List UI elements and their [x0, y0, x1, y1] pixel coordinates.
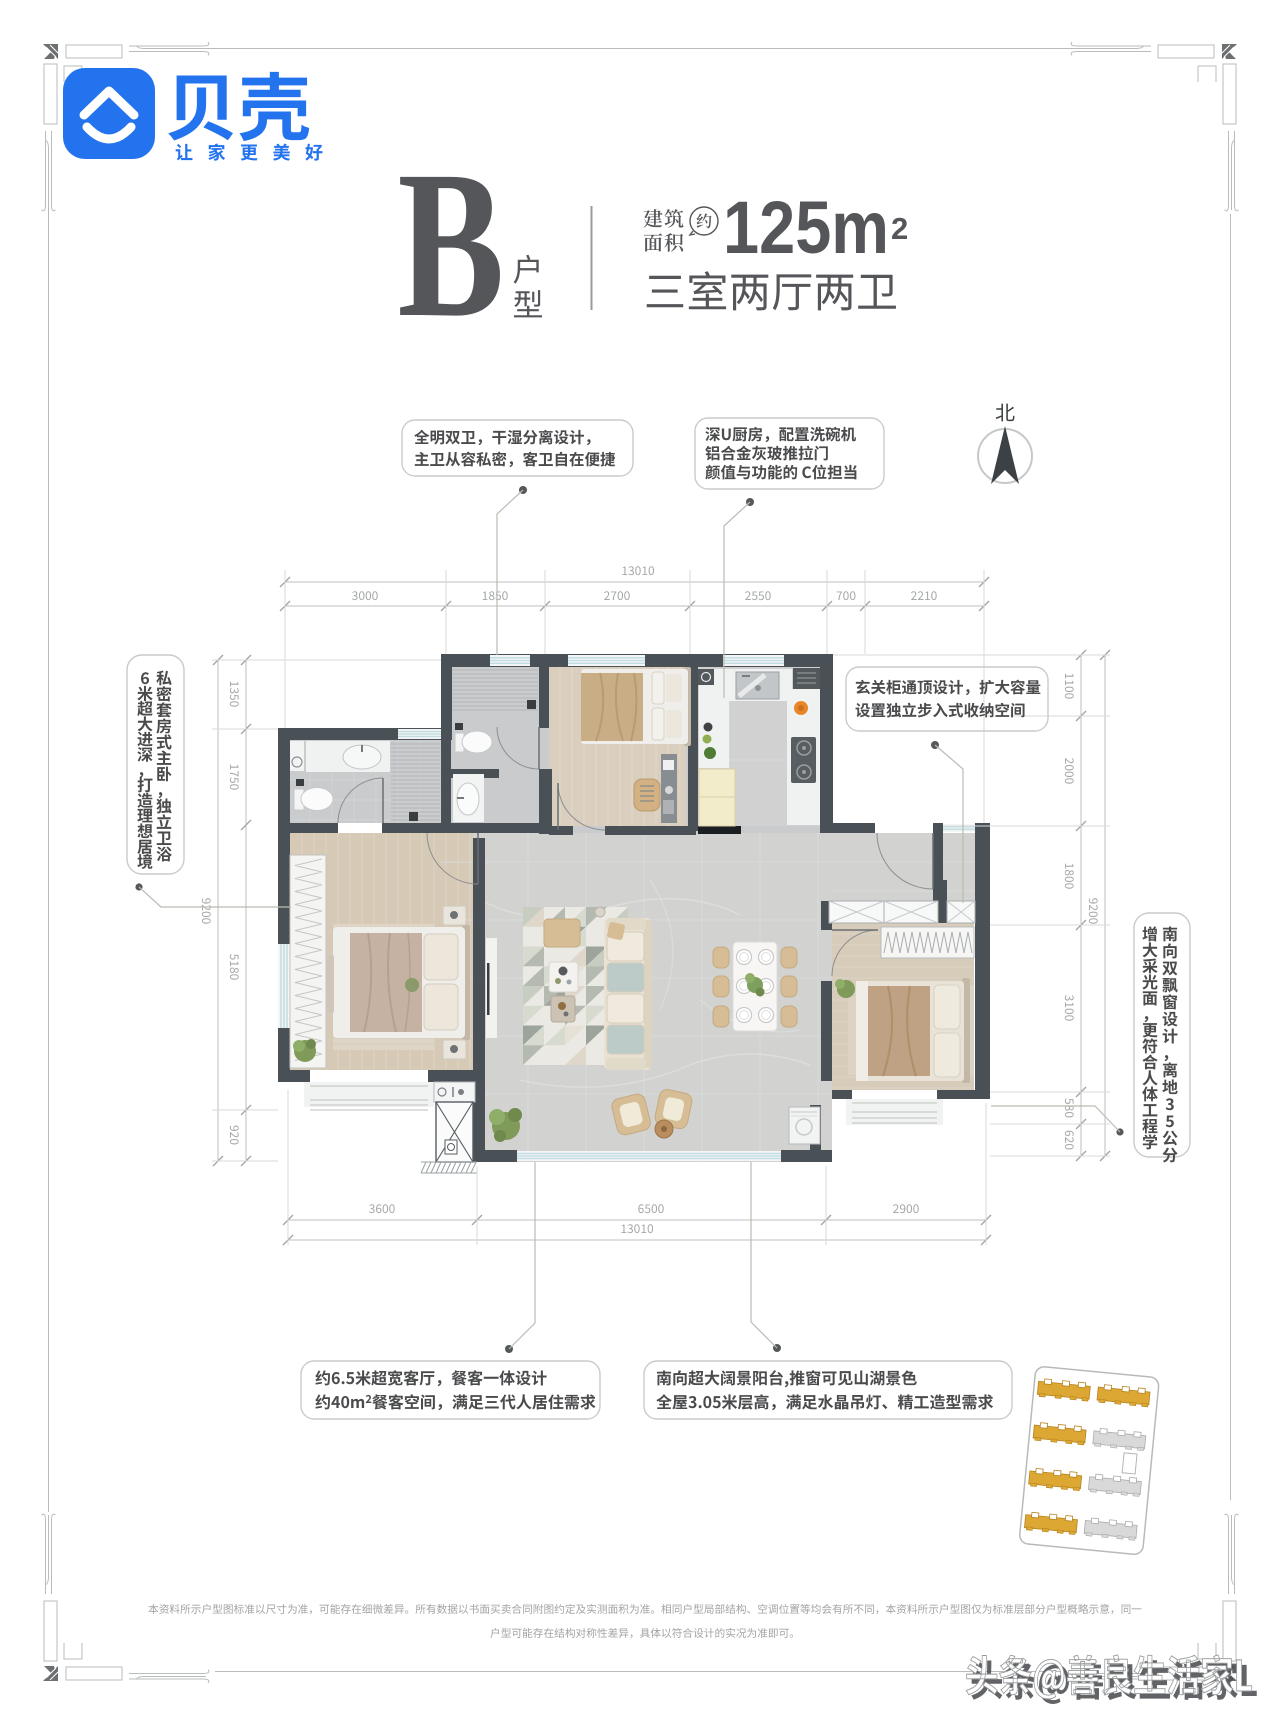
- svg-text:580: 580: [1061, 1098, 1078, 1118]
- svg-text:2700: 2700: [604, 587, 631, 604]
- svg-text:3600: 3600: [369, 1200, 396, 1217]
- svg-text:约6.5米超宽客厅，餐客一体设计: 约6.5米超宽客厅，餐客一体设计: [315, 1365, 547, 1389]
- svg-text:本资料所示户型图标准以尺寸为准，可能存在细微差异。所有数据以: 本资料所示户型图标准以尺寸为准，可能存在细微差异。所有数据以书面买卖合同附图约定…: [148, 1602, 1142, 1617]
- svg-text:5180: 5180: [226, 954, 243, 981]
- svg-text:2210: 2210: [911, 587, 938, 604]
- svg-text:1100: 1100: [1061, 673, 1078, 700]
- svg-text:1750: 1750: [226, 764, 243, 791]
- svg-text:2550: 2550: [745, 587, 772, 604]
- svg-text:9200: 9200: [198, 898, 215, 925]
- svg-text:境: 境: [137, 849, 153, 873]
- svg-text:620: 620: [1061, 1130, 1078, 1150]
- svg-text:1850: 1850: [482, 587, 509, 604]
- svg-text:920: 920: [226, 1125, 243, 1145]
- svg-text:约40m2餐客空间，满足三代人居住需求: 约40m2餐客空间，满足三代人居住需求: [315, 1389, 596, 1413]
- svg-text:玄关柜通顶设计，扩大容量: 玄关柜通顶设计，扩大容量: [855, 676, 1041, 698]
- svg-text:9200: 9200: [1085, 898, 1102, 925]
- svg-text:主卫从容私密，客卫自在便捷: 主卫从容私密，客卫自在便捷: [414, 448, 616, 470]
- svg-text:6500: 6500: [638, 1200, 665, 1217]
- svg-text:2900: 2900: [893, 1200, 920, 1217]
- svg-text:2000: 2000: [1061, 758, 1078, 785]
- svg-text:125m: 125m: [723, 186, 889, 269]
- svg-text:13010: 13010: [621, 562, 655, 579]
- svg-text:三室两厅两卫: 三室两厅两卫: [644, 259, 898, 320]
- svg-text:全屋3.05米层高，满足水晶吊灯、精工造型需求: 全屋3.05米层高，满足水晶吊灯、精工造型需求: [656, 1389, 994, 1413]
- svg-text:面积: 面积: [643, 227, 685, 256]
- svg-text:学: 学: [1142, 1129, 1158, 1153]
- svg-text:3100: 3100: [1061, 995, 1078, 1022]
- svg-text:分: 分: [1162, 1142, 1178, 1166]
- svg-text:2: 2: [891, 211, 908, 246]
- svg-text:全明双卫，干湿分离设计，: 全明双卫，干湿分离设计，: [414, 426, 600, 448]
- svg-text:让家更美好: 让家更美好: [175, 139, 338, 165]
- svg-text:700: 700: [836, 587, 856, 604]
- svg-text:设置独立步入式收纳空间: 设置独立步入式收纳空间: [855, 699, 1026, 721]
- svg-text:1350: 1350: [226, 681, 243, 708]
- svg-text:3000: 3000: [352, 587, 379, 604]
- svg-text:北: 北: [995, 397, 1015, 426]
- svg-text:浴: 浴: [156, 841, 172, 865]
- svg-text:户型可能存在结构对称性差异，具体以符合设计的实况为准即可。: 户型可能存在结构对称性差异，具体以符合设计的实况为准即可。: [490, 1626, 800, 1641]
- svg-text:1800: 1800: [1061, 863, 1078, 890]
- svg-text:南向超大阔景阳台,推窗可见山湖景色: 南向超大阔景阳台,推窗可见山湖景色: [656, 1365, 917, 1389]
- svg-text:型: 型: [513, 280, 544, 325]
- svg-text:约: 约: [696, 209, 712, 232]
- svg-text:B: B: [397, 127, 504, 361]
- svg-text:颜值与功能的 C位担当: 颜值与功能的 C位担当: [705, 461, 858, 483]
- svg-text:头条@善良生活家L: 头条@善良生活家L: [965, 1643, 1253, 1704]
- svg-text:13010: 13010: [620, 1220, 654, 1237]
